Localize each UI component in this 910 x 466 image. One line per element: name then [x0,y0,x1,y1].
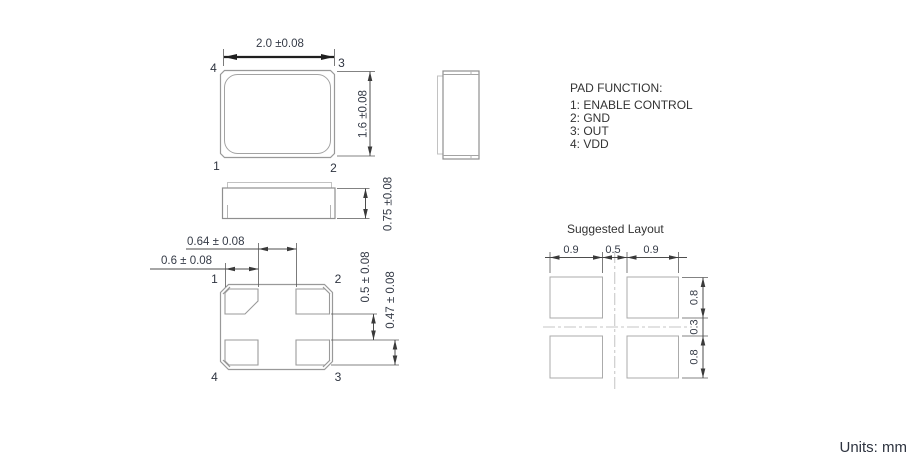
end-view [438,71,480,159]
bottom-view-pad2-label: 2 [335,272,342,286]
dim-height-label: 1.6 ±0.08 [358,90,370,138]
suggested-layout-title: Suggested Layout [567,222,664,236]
dim-05-label: 0.5 ± 0.08 [360,251,372,302]
layout-dim-08-top-label: 0.8 [689,290,701,305]
layout-dim-08-bottom-label: 0.8 [689,349,701,364]
pad-function-title: PAD FUNCTION: [570,81,662,95]
bottom-pad-4 [225,340,258,365]
pad-function-item-4: 4: VDD [570,137,609,151]
suggested-layout: Suggested Layout 0.9 0.5 0.9 0.8 0.3 0.8 [543,222,708,389]
dim-06-label: 0.6 ± 0.08 [161,255,212,267]
front-view-lid [228,183,332,189]
drawing-canvas: 2.0 ±0.08 1.6 ±0.08 4 3 1 2 0.75 ±0.08 [0,0,910,466]
front-view-body [223,188,336,219]
bottom-pad-1 [225,289,258,314]
top-view-pad2-label: 2 [330,161,337,175]
bottom-view-pad3-label: 3 [335,370,342,384]
end-view-lid [438,76,444,154]
front-view: 0.75 ±0.08 [223,177,395,231]
layout-pad-bottom-left [550,336,603,378]
layout-dim-09-left-label: 0.9 [563,244,578,256]
pad-function-item-2: 2: GND [570,111,610,125]
pad-function-block: PAD FUNCTION: 1: ENABLE CONTROL 2: GND 3… [570,81,693,151]
layout-dim-03-label: 0.3 [689,319,701,334]
pad-function-item-1: 1: ENABLE CONTROL [570,98,693,112]
units-label: Units: mm [840,439,908,456]
top-view-pad3-label: 3 [338,56,345,70]
top-view-pad4-label: 4 [210,61,217,75]
bottom-view-pad1-label: 1 [211,272,218,286]
layout-pad-top-right [627,277,679,318]
top-view-pad1-label: 1 [213,159,220,173]
layout-dim-05-label: 0.5 [605,244,620,256]
layout-pad-bottom-right [627,336,679,378]
dim-width-label: 2.0 ±0.08 [256,38,304,50]
bottom-view: 1 2 4 3 0.64 ± 0.08 0.6 ± 0.08 0.5 ± 0.0… [150,236,399,384]
layout-dim-09-right-label: 0.9 [643,244,658,256]
top-view: 2.0 ±0.08 1.6 ±0.08 4 3 1 2 [210,38,375,175]
dim-thickness-label: 0.75 ±0.08 [383,177,395,231]
technical-drawing-page: 2.0 ±0.08 1.6 ±0.08 4 3 1 2 0.75 ±0.08 [0,0,910,466]
pad-function-item-3: 3: OUT [570,124,609,138]
bottom-view-pad4-label: 4 [211,370,218,384]
dim-064-label: 0.64 ± 0.08 [187,236,244,248]
layout-pad-top-left [550,277,603,318]
top-view-outline [221,71,335,158]
end-view-body [443,71,479,159]
bottom-pad-3 [296,340,330,365]
dim-047-label: 0.47 ± 0.08 [385,271,397,328]
top-view-lid-outline [225,75,331,154]
bottom-pad-2 [296,289,330,314]
